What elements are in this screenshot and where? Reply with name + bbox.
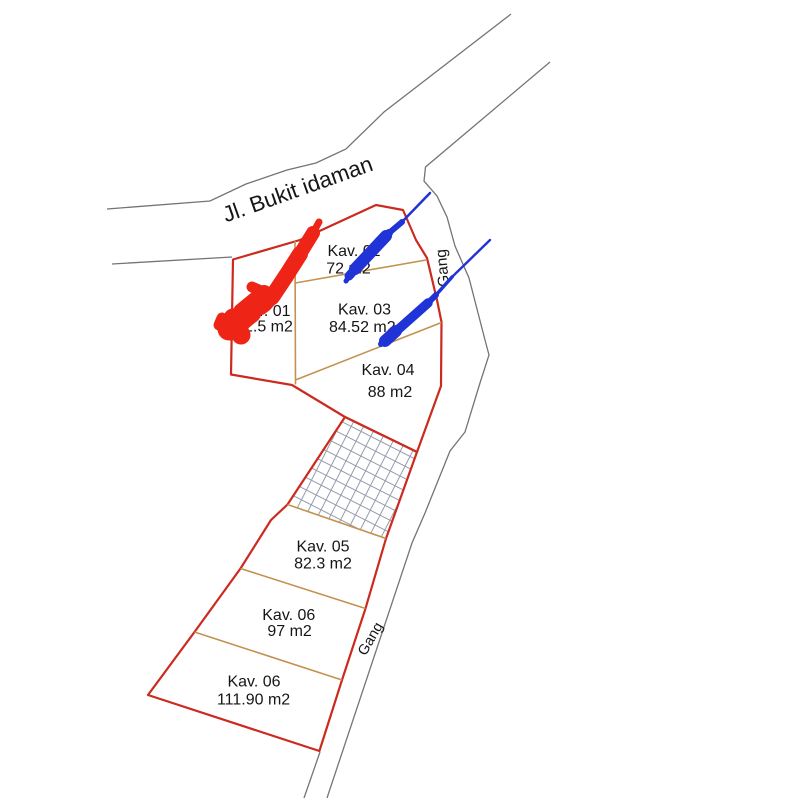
svg-text:111.90 m2: 111.90 m2 <box>217 692 290 709</box>
svg-text:97 m2: 97 m2 <box>267 623 312 640</box>
svg-text:Kav. 03: Kav. 03 <box>338 302 391 319</box>
svg-text:Kav. 05: Kav. 05 <box>296 539 349 556</box>
svg-text:Kav. 06: Kav. 06 <box>262 607 315 624</box>
svg-text:82.3 m2: 82.3 m2 <box>294 556 352 573</box>
svg-text:88 m2: 88 m2 <box>368 384 413 401</box>
svg-text:Kav. 04: Kav. 04 <box>361 362 414 379</box>
svg-text:Kav. 06: Kav. 06 <box>227 674 280 691</box>
